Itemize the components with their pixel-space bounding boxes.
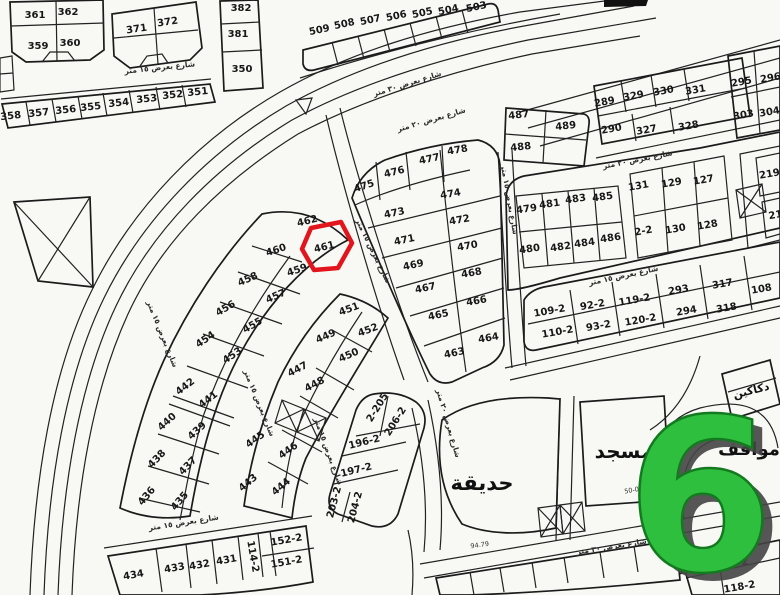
plot-label-487: 487 [508, 109, 530, 122]
plot-label-128: 128 [696, 218, 719, 232]
map-stroke [630, 156, 732, 258]
plot-label-449: 449 [314, 327, 338, 346]
plot-label-351: 351 [187, 86, 209, 99]
plot-label-489: 489 [555, 120, 577, 133]
plot-label-120-2: 120-2 [624, 312, 657, 328]
plot-label-93-2: 93-2 [585, 319, 612, 334]
plot-label-318: 318 [715, 301, 738, 315]
plot-label-359: 359 [28, 41, 49, 52]
plot-label-92-2: 92-2 [579, 298, 606, 313]
plot-label-203-2: 203-2 [325, 485, 344, 519]
plot-label-474: 474 [439, 187, 462, 201]
plot-label-358: 358 [0, 110, 22, 123]
plot-label-451: 451 [337, 301, 360, 318]
street-label-7: شارع بعرض ١٥ متر [145, 299, 180, 369]
plot-label-151-2: 151-2 [270, 554, 303, 570]
plot-label-382: 382 [231, 3, 252, 14]
plot-label-431: 431 [215, 553, 238, 567]
map-stroke [408, 530, 413, 595]
plot-label-304: 304 [758, 105, 780, 119]
street-label-8: شارع بعرض ١٥ متر [242, 368, 277, 438]
plot-label-437: 437 [177, 455, 199, 478]
plot-label-114-2: 114-2 [244, 540, 260, 573]
plot-label-477: 477 [418, 152, 441, 167]
plot-label-446: 446 [277, 440, 300, 461]
plot-label-119-2: 119-2 [618, 292, 651, 308]
street-label-6: شارع بعرض ١٥ متر [587, 264, 659, 288]
plot-label-470: 470 [456, 239, 479, 253]
street-label-1: شارع بعرض ٣٠ متر [371, 69, 442, 99]
plot-label-432: 432 [188, 558, 211, 572]
cadastral-map: حديقة مسجد مواقف دكاكين 3613623593603713… [0, 0, 780, 595]
plot-label-436: 436 [136, 485, 158, 508]
street-label-2: شارع بعرض ٢٠ متر [395, 106, 467, 134]
plot-label-327: 327 [635, 123, 658, 137]
plot-label-472: 472 [448, 213, 471, 227]
plot-label-506: 506 [385, 9, 408, 24]
plot-label-479: 479 [516, 203, 538, 217]
plot-label-486: 486 [600, 232, 622, 246]
plot-label-372: 372 [157, 16, 179, 30]
plot-label-463: 463 [443, 346, 466, 361]
plot-label-456: 456 [214, 299, 238, 319]
plot-label-317: 317 [711, 277, 734, 291]
band-434-462 [120, 212, 348, 520]
plot-label-330: 330 [652, 84, 675, 98]
map-stroke [275, 400, 304, 432]
map-stroke [139, 246, 302, 512]
plot-label-508: 508 [333, 17, 356, 32]
x-mark [538, 502, 585, 537]
plot-label-464: 464 [477, 331, 500, 345]
plot-label-447: 447 [286, 360, 310, 380]
edge-partial-plots [0, 56, 14, 92]
plot-label-296: 296 [759, 71, 780, 85]
map-stroke [114, 8, 198, 66]
plot-label-504: 504 [437, 3, 460, 18]
cut-plot-strip [604, 0, 648, 7]
map-stroke [538, 505, 563, 537]
park-label: حديقة [451, 471, 514, 495]
plot-label-356: 356 [55, 104, 77, 117]
plot-label-303: 303 [732, 108, 755, 122]
plot-label-354: 354 [108, 97, 130, 110]
map-stroke [736, 184, 766, 218]
district-number: 6 [626, 373, 774, 595]
plot-label-293: 293 [667, 283, 690, 297]
block-371-372 [112, 2, 202, 68]
plot-label-478: 478 [446, 143, 469, 157]
plot-label-484: 484 [574, 237, 596, 251]
plot-label-476: 476 [383, 165, 406, 181]
plot-label-482: 482 [550, 241, 572, 255]
plot-label-2-2: 2-2 [634, 225, 654, 239]
plot-label-131: 131 [627, 179, 650, 193]
plot-label-352: 352 [162, 89, 184, 102]
plot-label-110-2: 110-2 [541, 324, 574, 340]
map-stroke [428, 400, 442, 550]
plot-label-457: 457 [264, 287, 288, 306]
plot-label-453: 453 [221, 346, 244, 367]
street-label-12: شارع بعرض ١٥ متر [147, 513, 219, 533]
street-label-9: شارع بعرض ١٥ متر [312, 415, 345, 486]
plot-label-127: 127 [692, 173, 715, 187]
plot-label-466: 466 [465, 294, 488, 308]
map-stroke [326, 115, 404, 380]
map-canvas: حديقة مسجد مواقف دكاكين 3613623593603713… [0, 0, 780, 595]
street-label-10: شارع بعرض ٢٠ متر [434, 387, 462, 459]
plot-label-473: 473 [383, 206, 406, 221]
plot-label-471: 471 [393, 233, 416, 248]
plot-label-152-2: 152-2 [270, 532, 303, 548]
plot-label-360: 360 [60, 38, 81, 49]
plot-label-381: 381 [228, 29, 249, 40]
street-label-0: شارع بعرض ١٥ متر [123, 59, 195, 75]
plot-label-469: 469 [402, 258, 425, 273]
ring-road [30, 0, 656, 595]
plot-label-483: 483 [565, 193, 587, 207]
map-stroke [120, 212, 348, 518]
plot-label-289: 289 [593, 95, 616, 109]
map-stroke [560, 502, 585, 534]
plot-label-461: 461 [313, 240, 336, 256]
plot-label-295: 295 [730, 75, 753, 89]
plot-label-219: 219 [758, 167, 780, 181]
plot-label-467: 467 [414, 281, 437, 296]
plot-label-357: 357 [28, 107, 50, 120]
plot-label-355: 355 [80, 101, 102, 114]
plot-label-434: 434 [122, 568, 145, 582]
measurement-9479: 94.79 [470, 540, 490, 551]
utility-square [14, 197, 93, 287]
plot-label-475: 475 [353, 178, 376, 195]
traffic-island [296, 98, 312, 114]
map-stroke [0, 56, 14, 92]
plot-label-350: 350 [232, 64, 253, 75]
plot-label-442: 442 [174, 376, 197, 398]
plot-label-328: 328 [677, 119, 700, 133]
plot-label-362: 362 [58, 7, 79, 18]
plot-label-206-2: 206-2 [383, 405, 409, 438]
plot-label-443: 443 [237, 472, 260, 494]
plot-label-361: 361 [25, 10, 46, 21]
plot-label-444: 444 [270, 476, 293, 498]
plot-label-485: 485 [592, 191, 614, 205]
plot-label-371: 371 [126, 23, 148, 37]
map-stroke [470, 546, 638, 595]
plot-label-353: 353 [136, 93, 158, 106]
plot-label-488: 488 [510, 141, 532, 154]
plot-label-129: 129 [660, 176, 683, 190]
plot-label-503: 503 [465, 0, 488, 15]
plot-label-21: 21 [768, 209, 780, 222]
plot-label-433: 433 [163, 561, 186, 575]
plot-label-438: 438 [146, 448, 168, 471]
plot-label-130: 130 [664, 222, 687, 236]
plot-label-450: 450 [337, 346, 361, 365]
plot-label-480: 480 [519, 243, 541, 257]
plot-label-440: 440 [156, 411, 179, 433]
plot-label-329: 329 [622, 89, 645, 103]
plot-label-481: 481 [539, 198, 561, 212]
plot-label-507: 507 [359, 13, 382, 28]
plot-label-454: 454 [194, 330, 217, 351]
x-mark [736, 184, 766, 218]
plot-label-468: 468 [460, 266, 483, 280]
plot-label-509: 509 [308, 23, 331, 38]
plot-label-290: 290 [600, 122, 623, 136]
plot-label-108: 108 [750, 282, 773, 296]
